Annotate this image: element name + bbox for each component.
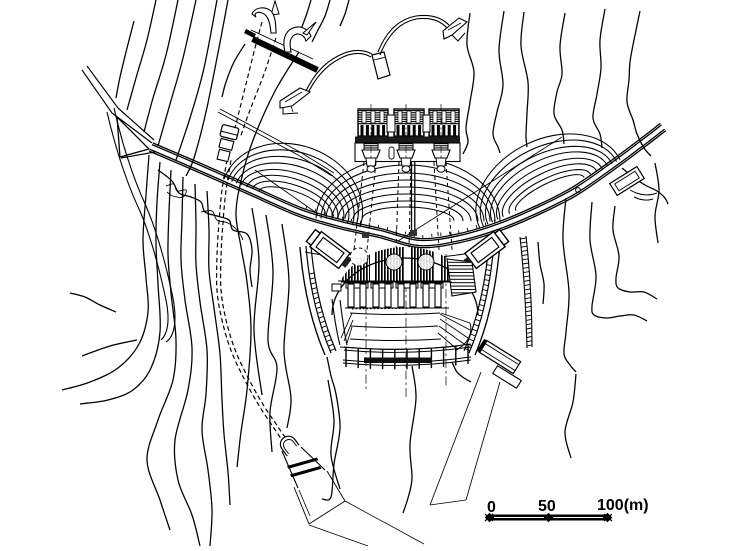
svg-text:50: 50 bbox=[538, 498, 556, 515]
svg-text:0: 0 bbox=[487, 499, 496, 516]
svg-text:100(m): 100(m) bbox=[597, 497, 649, 514]
